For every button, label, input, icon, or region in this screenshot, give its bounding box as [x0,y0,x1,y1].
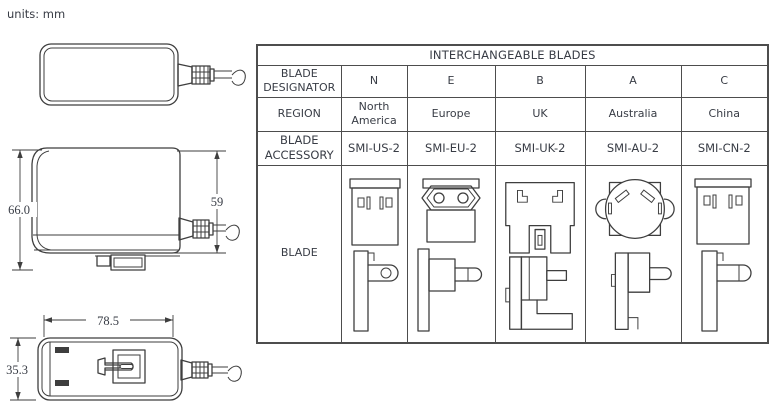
svg-text:35.3: 35.3 [6,363,28,377]
accessory-smi-au-2: SMI-AU-2 [585,131,681,165]
us-blade-icon [342,169,406,339]
accessory-smi-uk-2: SMI-UK-2 [495,131,585,165]
release-latch [97,256,110,266]
svg-text:78.5: 78.5 [97,314,119,328]
blade-cell-cn [681,165,768,343]
designator-a: A [585,66,681,98]
units-label: units: mm [7,7,65,21]
region-uk: UK [495,97,585,131]
blade-slot [55,380,69,386]
strain-relief-cone [179,218,193,240]
dim-overall-length: 78.5 [44,312,173,337]
row-header-designator: BLADE DESIGNATOR [257,66,341,98]
adapter-top-view [30,38,250,113]
accessory-smi-cn-2: SMI-CN-2 [681,131,768,165]
release-latch [98,358,120,375]
eu-blade-icon [408,169,494,339]
au-blade-icon [586,169,680,339]
strain-relief-cone [178,64,192,86]
designator-n: N [341,66,407,98]
region-australia: Australia [585,97,681,131]
blade-cell-uk [495,165,585,343]
blade-cell-au [585,165,681,343]
adapter-front-view: 66.0 59 [0,138,250,290]
row-header-region: REGION [257,97,341,131]
blade-mount-tab [111,255,145,270]
accessory-smi-eu-2: SMI-EU-2 [407,131,495,165]
adapter-bottom-view: 78.5 35.3 [0,303,250,404]
svg-text:59: 59 [211,195,224,209]
accessory-smi-us-2: SMI-US-2 [341,131,407,165]
uk-blade-icon [496,169,584,339]
blade-cell-us [341,165,407,343]
region-china: China [681,97,768,131]
designator-c: C [681,66,768,98]
dim-overall-height: 66.0 [2,150,42,270]
table-title: INTERCHANGEABLE BLADES [257,45,768,66]
region-europe: Europe [407,97,495,131]
region-north-america: North America [341,97,407,131]
blade-slot [55,347,69,353]
designator-b: B [495,66,585,98]
row-header-blade: BLADE [257,165,341,343]
interchangeable-blades-table: INTERCHANGEABLE BLADES BLADE DESIGNATOR … [256,44,769,344]
designator-e: E [407,66,495,98]
row-header-accessory: BLADE ACCESSORY [257,131,341,165]
dim-overall-width: 35.3 [1,338,36,400]
cn-blade-icon [682,169,766,339]
blade-cell-eu [407,165,495,343]
svg-text:66.0: 66.0 [8,203,30,217]
